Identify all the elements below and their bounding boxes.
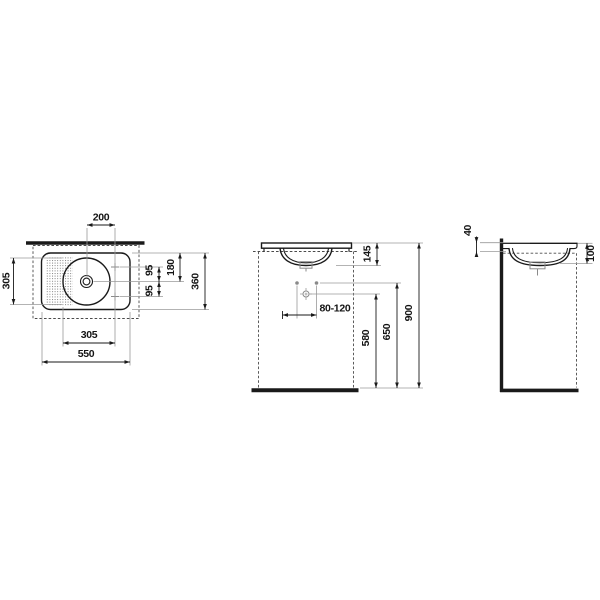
front-dim-580-label: 580 xyxy=(360,329,372,346)
plan-drain-inner xyxy=(83,278,90,285)
plan-dim-95-lower-label: 95 xyxy=(144,285,156,297)
side-basin-outline xyxy=(503,243,577,275)
front-view: 145 80-120 580 650 900 xyxy=(252,243,424,390)
plan-dim-305-left-label: 305 xyxy=(1,272,13,289)
washbasin-technical-drawing: 200 305 95 95 180 360 305 550 xyxy=(0,0,600,600)
plan-dim-200-label: 200 xyxy=(93,212,110,224)
side-view: 40 100 xyxy=(462,225,597,392)
side-dim-40-label: 40 xyxy=(462,225,474,237)
front-dim-650-label: 650 xyxy=(381,323,393,340)
plan-dim-180-label: 180 xyxy=(165,259,177,276)
plan-dim-305-bottom-label: 305 xyxy=(81,329,98,341)
front-dim-900-label: 900 xyxy=(403,304,415,321)
front-supply-dots xyxy=(295,281,318,285)
plan-extension-lines xyxy=(10,228,209,366)
plan-view: 200 305 95 95 180 360 305 550 xyxy=(1,212,210,366)
front-dim-80-120-label: 80-120 xyxy=(320,303,351,315)
plan-stipple-shelf xyxy=(46,257,73,306)
front-basin-outline xyxy=(262,243,352,272)
side-dim-100-label: 100 xyxy=(585,245,597,262)
plan-dim-360-label: 360 xyxy=(190,273,202,290)
plan-dim-95-upper-label: 95 xyxy=(144,265,156,277)
plan-dim-550-label: 550 xyxy=(78,348,95,360)
technical-drawing-page: 200 305 95 95 180 360 305 550 xyxy=(0,0,600,600)
front-dim-145-label: 145 xyxy=(362,245,374,262)
plan-drain-outer xyxy=(81,276,93,288)
